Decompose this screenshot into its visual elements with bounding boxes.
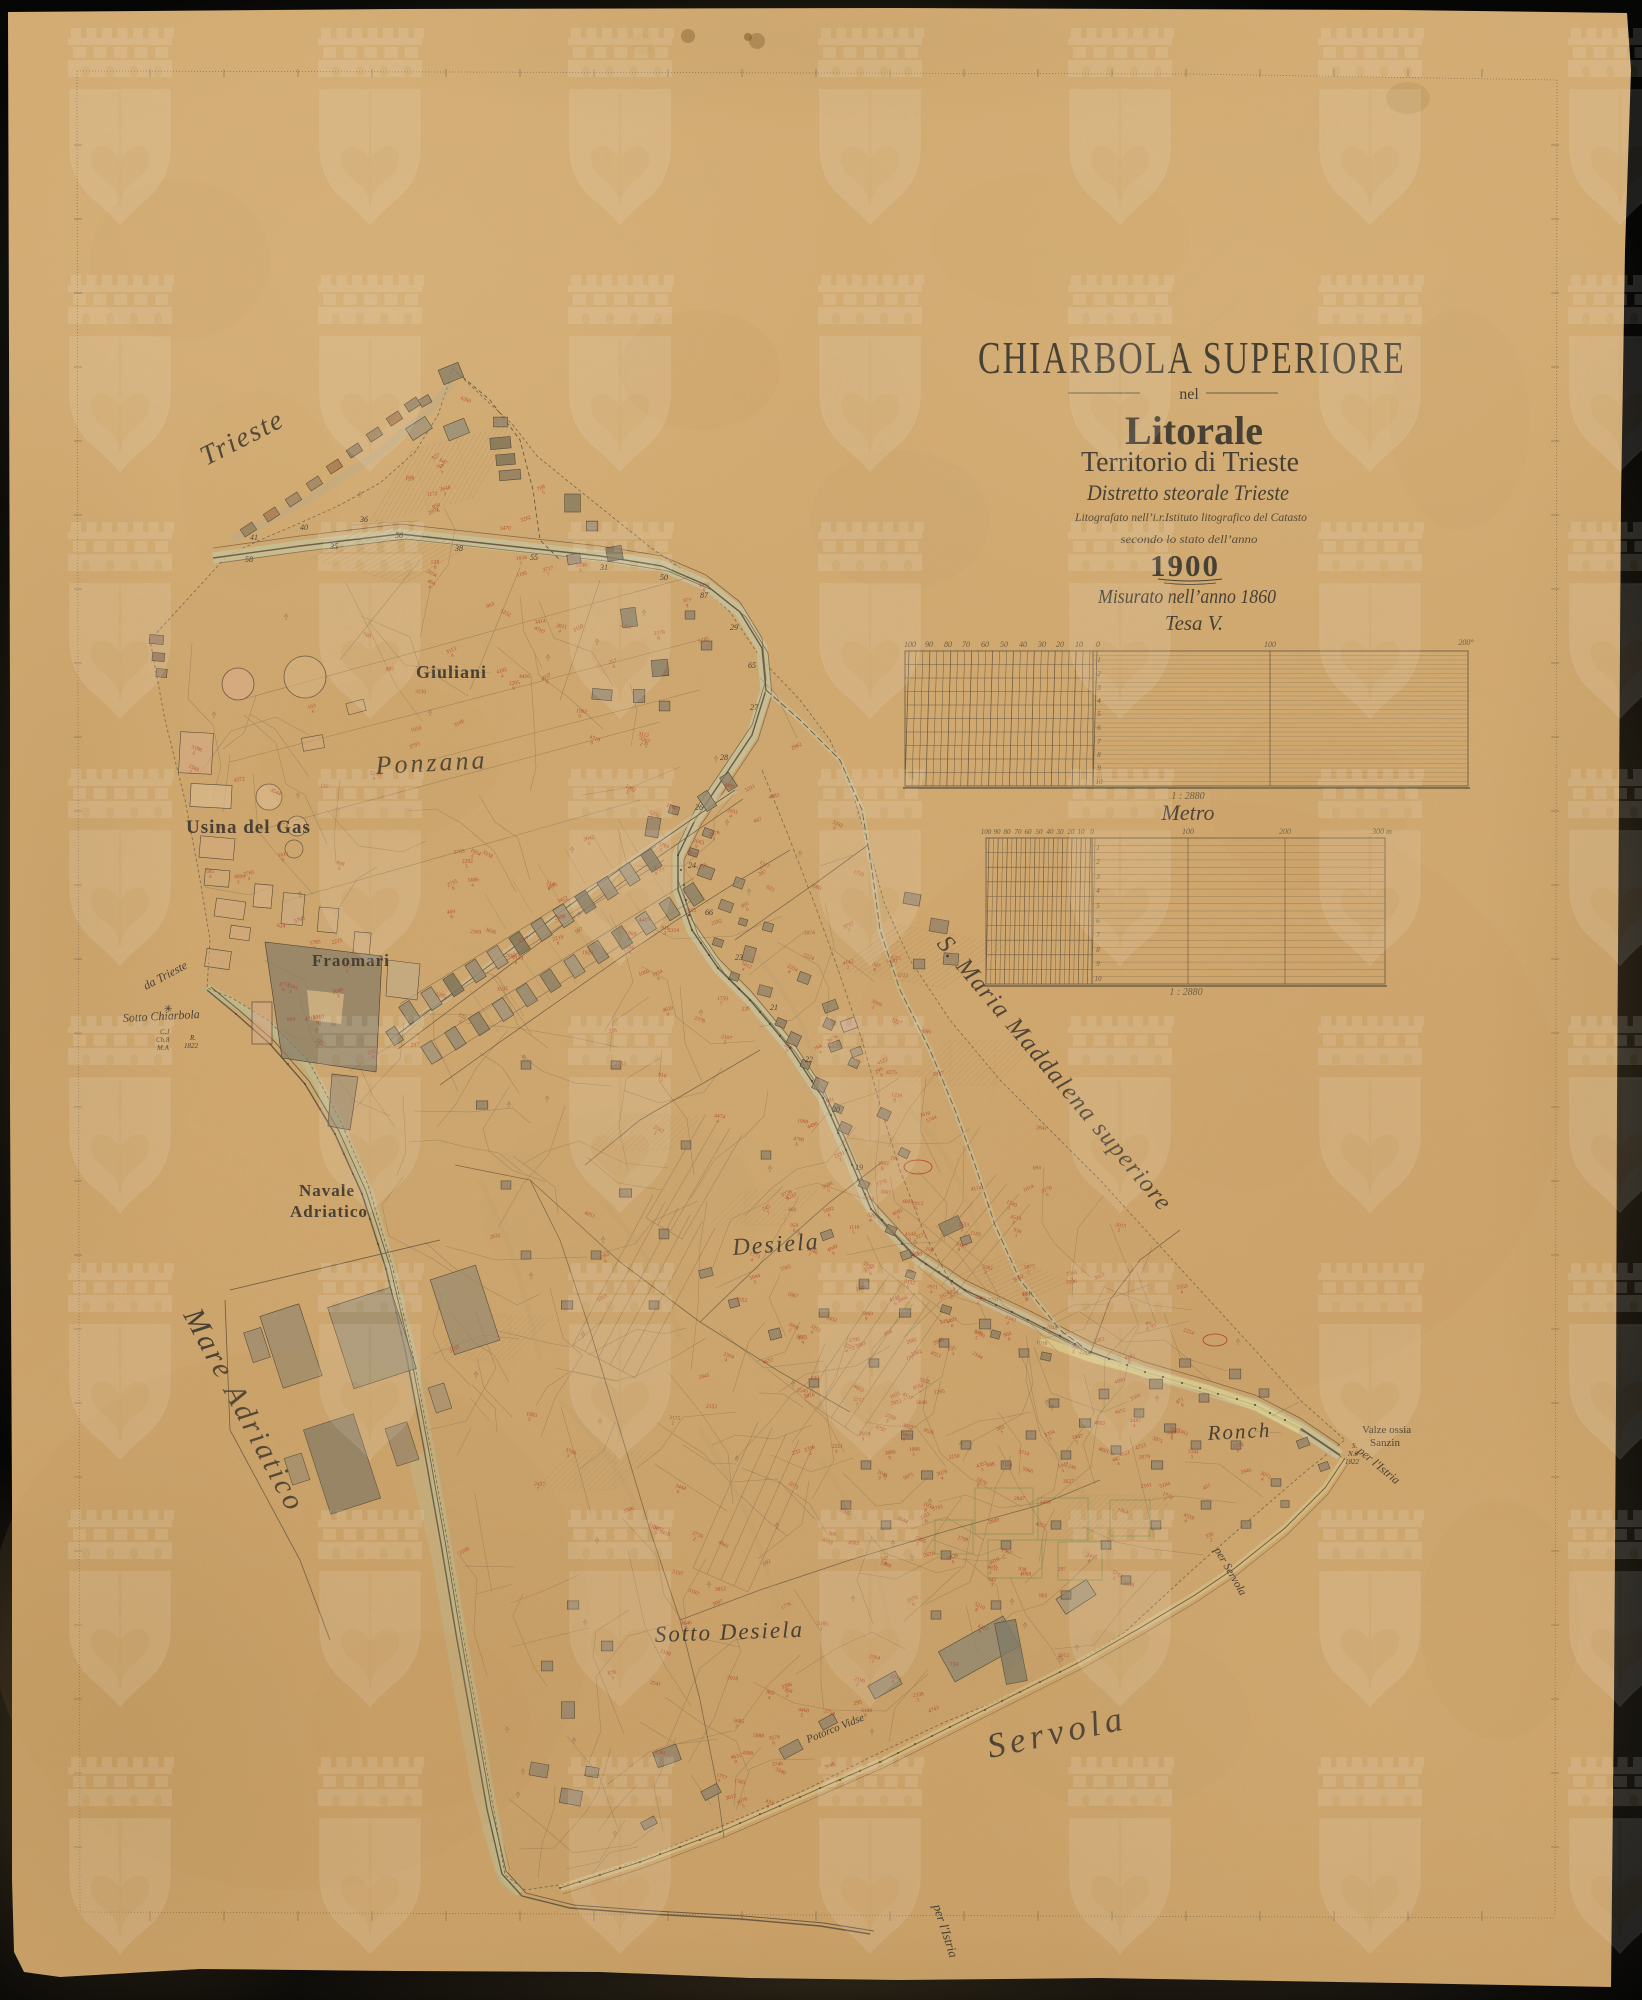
svg-text:50: 50 xyxy=(660,573,668,582)
svg-text:8: 8 xyxy=(1097,751,1101,759)
svg-text:7: 7 xyxy=(1097,738,1101,746)
svg-text:26: 26 xyxy=(695,803,703,812)
svg-text:nel: nel xyxy=(1179,386,1199,403)
svg-text:50: 50 xyxy=(1000,640,1008,649)
svg-text:Usina del Gas: Usina del Gas xyxy=(186,817,311,838)
svg-text:805: 805 xyxy=(1039,1593,1048,1599)
svg-text:1285: 1285 xyxy=(934,1389,946,1396)
svg-text:2915: 2915 xyxy=(505,953,516,959)
svg-text:5888: 5888 xyxy=(753,1733,765,1740)
svg-text:1822: 1822 xyxy=(1345,1458,1360,1466)
svg-text:460: 460 xyxy=(788,1207,797,1213)
svg-text:2153: 2153 xyxy=(706,1404,717,1410)
svg-text:297: 297 xyxy=(1058,1566,1067,1573)
svg-text:Litografato nell’i.r.Istituto: Litografato nell’i.r.Istituto litografic… xyxy=(1074,510,1307,524)
svg-text:Tesa V.: Tesa V. xyxy=(1165,611,1223,635)
svg-text:2309: 2309 xyxy=(470,929,482,936)
svg-text:R.: R. xyxy=(189,1034,196,1042)
svg-text:40: 40 xyxy=(1019,640,1027,649)
svg-text:894: 894 xyxy=(287,1017,296,1023)
svg-text:2079: 2079 xyxy=(1139,1454,1151,1461)
svg-text:200°: 200° xyxy=(1458,638,1474,647)
svg-text:675: 675 xyxy=(406,475,415,482)
svg-text:27: 27 xyxy=(750,703,759,712)
svg-text:2847: 2847 xyxy=(1014,1496,1025,1502)
svg-text:4309: 4309 xyxy=(742,1750,754,1757)
svg-text:90: 90 xyxy=(925,640,933,649)
svg-text:70: 70 xyxy=(1015,828,1023,836)
svg-text:87: 87 xyxy=(700,591,709,600)
svg-text:1923: 1923 xyxy=(582,950,593,956)
svg-text:60: 60 xyxy=(1025,828,1033,836)
svg-text:Sotto Desiela: Sotto Desiela xyxy=(654,1617,804,1647)
svg-text:80: 80 xyxy=(1004,828,1012,836)
svg-text:N.6: N.6 xyxy=(1347,1450,1358,1458)
svg-text:9: 9 xyxy=(1097,764,1101,772)
svg-text:20: 20 xyxy=(1056,640,1064,649)
svg-text:3812: 3812 xyxy=(715,1586,727,1593)
svg-text:633: 633 xyxy=(811,1375,820,1382)
svg-text:30: 30 xyxy=(1037,640,1046,649)
svg-text:29: 29 xyxy=(730,623,738,632)
svg-text:100: 100 xyxy=(981,828,992,836)
svg-text:✳: ✳ xyxy=(164,1004,172,1015)
svg-text:724: 724 xyxy=(950,1662,959,1668)
svg-text:21: 21 xyxy=(770,1003,778,1012)
svg-text:1822: 1822 xyxy=(184,1042,199,1050)
svg-text:24: 24 xyxy=(688,861,696,870)
svg-text:Giuliani: Giuliani xyxy=(416,662,487,682)
svg-text:3552: 3552 xyxy=(736,1297,748,1304)
svg-text:Distretto steorale Trieste: Distretto steorale Trieste xyxy=(1086,480,1289,505)
svg-text:55: 55 xyxy=(530,553,538,562)
svg-text:90: 90 xyxy=(994,828,1002,836)
svg-text:100: 100 xyxy=(1264,640,1276,649)
svg-text:80: 80 xyxy=(944,640,952,649)
svg-text:60: 60 xyxy=(981,640,989,649)
svg-text:3132: 3132 xyxy=(497,986,509,993)
svg-text:1172: 1172 xyxy=(427,491,439,498)
svg-text:65: 65 xyxy=(748,661,756,670)
svg-text:3470: 3470 xyxy=(500,525,512,532)
svg-text:5: 5 xyxy=(1097,710,1101,718)
svg-text:38: 38 xyxy=(454,544,463,553)
svg-text:2354: 2354 xyxy=(668,928,679,934)
svg-text:4416: 4416 xyxy=(519,674,530,680)
svg-text:Ronch: Ronch xyxy=(1206,1418,1272,1445)
svg-text:6: 6 xyxy=(1097,724,1101,732)
svg-text:624: 624 xyxy=(277,923,286,930)
svg-text:28: 28 xyxy=(720,753,728,762)
svg-text:4450: 4450 xyxy=(1040,1499,1052,1506)
svg-text:Adriatico: Adriatico xyxy=(290,1202,368,1221)
svg-text:70: 70 xyxy=(962,640,970,649)
